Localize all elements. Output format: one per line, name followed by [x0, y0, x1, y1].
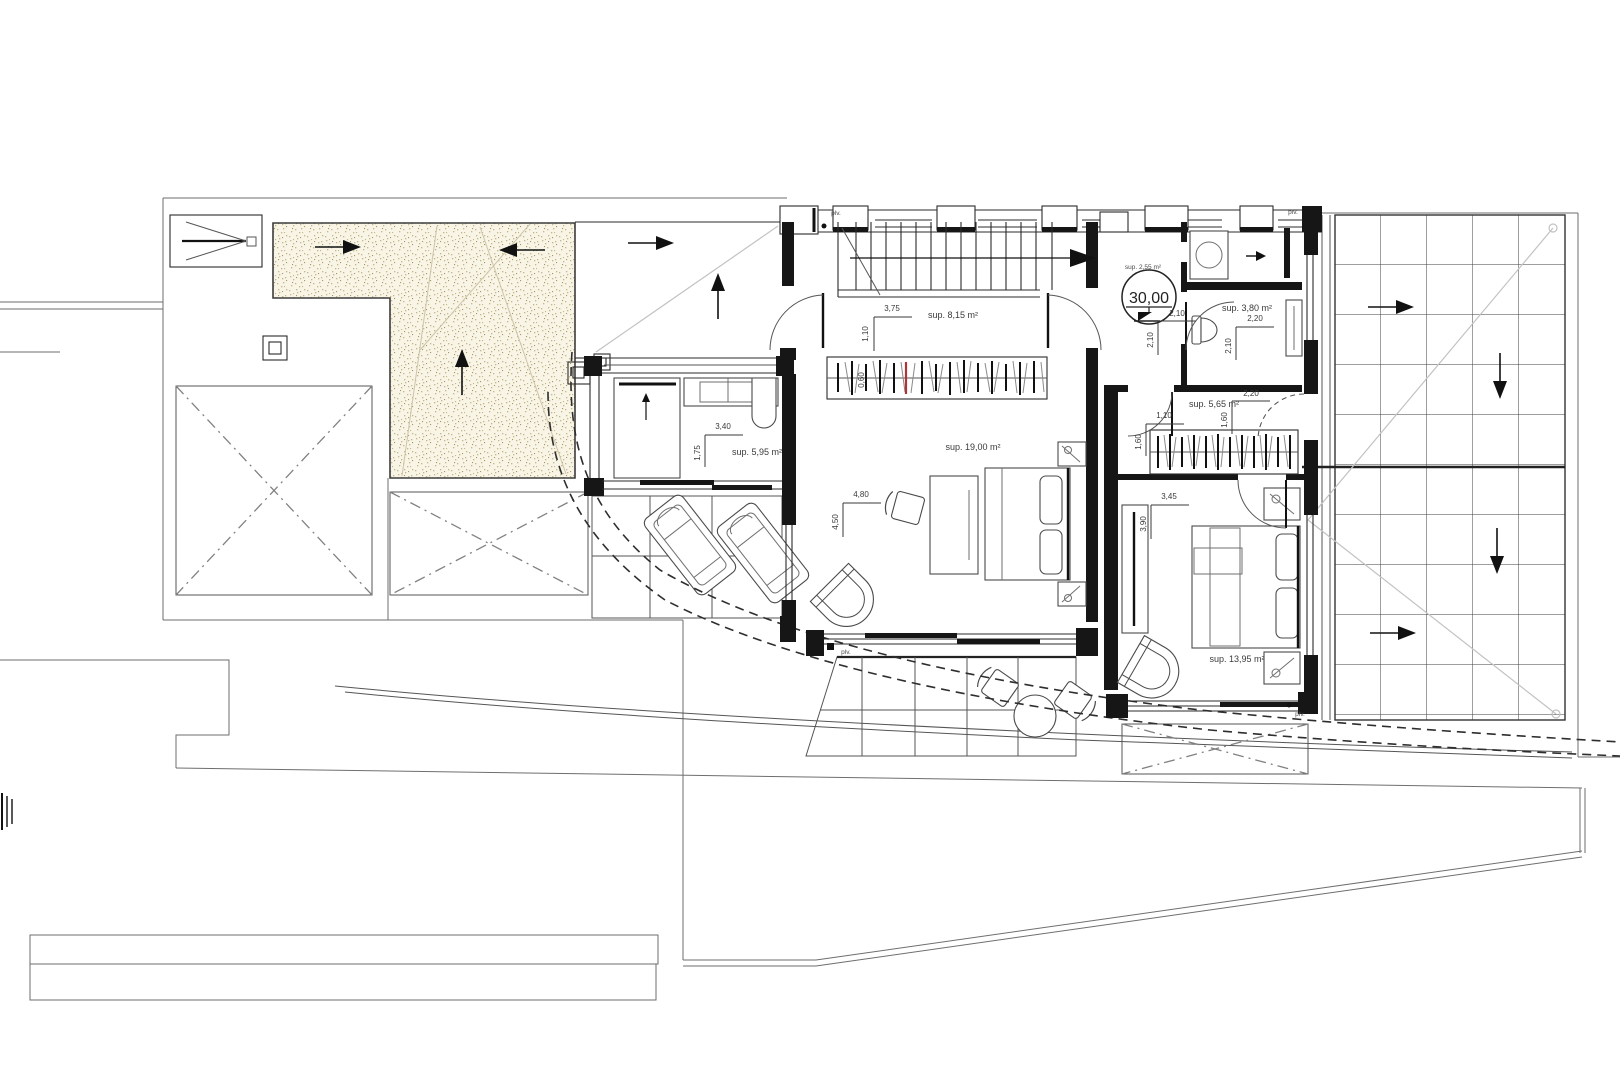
roof-stipple-area [273, 223, 575, 478]
level-value: 30,00 [1129, 290, 1169, 307]
dim-dressing-door-width: 1,10 [1156, 411, 1172, 420]
nightstand [1264, 488, 1300, 520]
nightstand [1058, 582, 1086, 606]
slope-arrow-icon [711, 273, 725, 319]
terrace-table [1014, 695, 1056, 737]
water-heater [752, 378, 776, 428]
duct-niche [1246, 228, 1290, 278]
skylight-box [390, 492, 588, 595]
desk-chair [883, 489, 926, 526]
nightstand [1058, 442, 1086, 466]
dim-lobby-depth: 2,10 [1146, 332, 1155, 348]
nightstand [1264, 652, 1300, 684]
dim-hall-door: 1,10 [861, 326, 870, 342]
dim-dressing-depth: 1,60 [1220, 412, 1229, 428]
lower-terrace [806, 657, 1100, 756]
laundry-area-label: sup. 5,95 m² [732, 447, 782, 457]
floor-plan-drawing: sup. 2,55 m² 30,00 sup. 8,15 m² sup. 5,9… [0, 0, 1620, 1080]
lounger-terrace [592, 492, 811, 618]
floor-plan-page: sup. 2,55 m² 30,00 sup. 8,15 m² sup. 5,9… [0, 0, 1620, 1080]
hall-area-label: sup. 8,15 m² [928, 310, 978, 320]
plv-label: plv. [831, 210, 841, 217]
bedroom2-area-label: sup. 13,95 m² [1209, 654, 1264, 664]
dim-dressing-width: 2,20 [1243, 389, 1259, 398]
roof-band [575, 222, 782, 358]
ramp-symbol [170, 215, 262, 267]
sun-lounger [642, 492, 739, 597]
dim-bedroom2-depth: 3,90 [1139, 516, 1148, 532]
slope-arrow-icon [628, 236, 674, 250]
bathroom-area-label: sup. 3,80 m² [1222, 303, 1272, 313]
bedroom1-furniture [810, 442, 1086, 638]
skylight-box [1122, 724, 1308, 774]
dim-dressing-door-depth: 1,60 [1134, 434, 1143, 450]
skylight-box [176, 386, 372, 595]
terrace-chair [1054, 681, 1100, 725]
staircase [822, 222, 1097, 297]
dim-lobby-width: 2,10 [1169, 309, 1185, 318]
dim-bedroom2-width: 3,45 [1161, 492, 1177, 501]
level-marker: sup. 2,55 m² 30,00 [1122, 264, 1176, 324]
dim-bedroom1-width: 4,80 [853, 490, 869, 499]
dressing-wardrobe [1150, 430, 1298, 474]
bedroom1-area-label: sup. 19,00 m² [945, 442, 1000, 452]
dim-bathroom-width: 2,20 [1247, 314, 1263, 323]
plv-label: plv. [1288, 209, 1298, 216]
bed-single [985, 468, 1070, 580]
dim-bedroom1-depth: 4,50 [831, 514, 840, 530]
desk [930, 476, 978, 574]
drain-icon [263, 336, 287, 360]
armchair [810, 563, 884, 637]
armchair [1117, 636, 1188, 708]
bed-double [1192, 526, 1300, 648]
dim-bathroom-depth: 2,10 [1224, 338, 1233, 354]
bedroom2-terrace-door [1106, 692, 1318, 718]
plv-label: plv. [1295, 711, 1305, 718]
dim-laundry-width: 3,40 [715, 422, 731, 431]
sun-lounger [715, 500, 812, 605]
laundry-room [614, 378, 778, 478]
right-terrace [1302, 215, 1565, 720]
dim-wardrobe-depth: 0,60 [857, 372, 866, 388]
plv-label: plv. [841, 649, 851, 656]
dim-hall-width: 3,75 [884, 304, 900, 313]
facade-pilasters [780, 206, 1322, 234]
datum-mark [2, 793, 12, 830]
dim-laundry-depth: 1,75 [693, 445, 702, 461]
terrace-chair [973, 664, 1019, 708]
shower-room [1190, 231, 1228, 279]
